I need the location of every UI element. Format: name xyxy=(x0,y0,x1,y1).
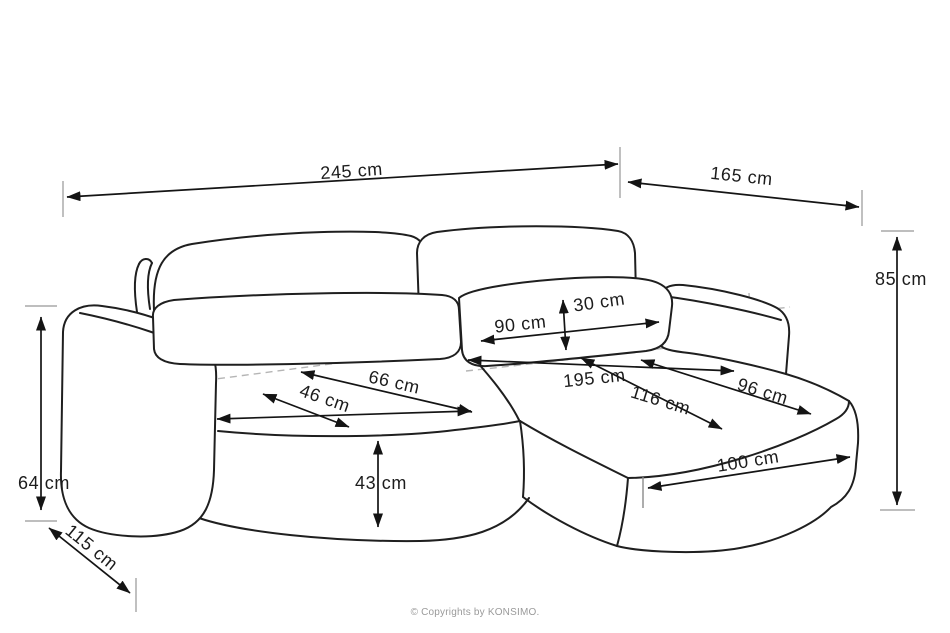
copyright-text: © Copyrights by KONSIMO. xyxy=(411,607,540,618)
back-frame-lines xyxy=(135,259,152,312)
dim-label-total-width: 245 cm xyxy=(320,159,384,183)
dim-label-total-height: 85 cm xyxy=(875,269,927,289)
diagram-canvas: 245 cm 165 cm 85 cm 90 cm 30 cm 195 cm 6… xyxy=(0,0,950,633)
dim-label-chaise-depth: 165 cm xyxy=(709,163,773,189)
left-pillow xyxy=(153,293,461,365)
dim-label-seat-height: 43 cm xyxy=(355,473,407,493)
sofa-dimension-diagram: 245 cm 165 cm 85 cm 90 cm 30 cm 195 cm 6… xyxy=(0,0,950,633)
dim-label-armrest-height: 64 cm xyxy=(18,473,70,493)
